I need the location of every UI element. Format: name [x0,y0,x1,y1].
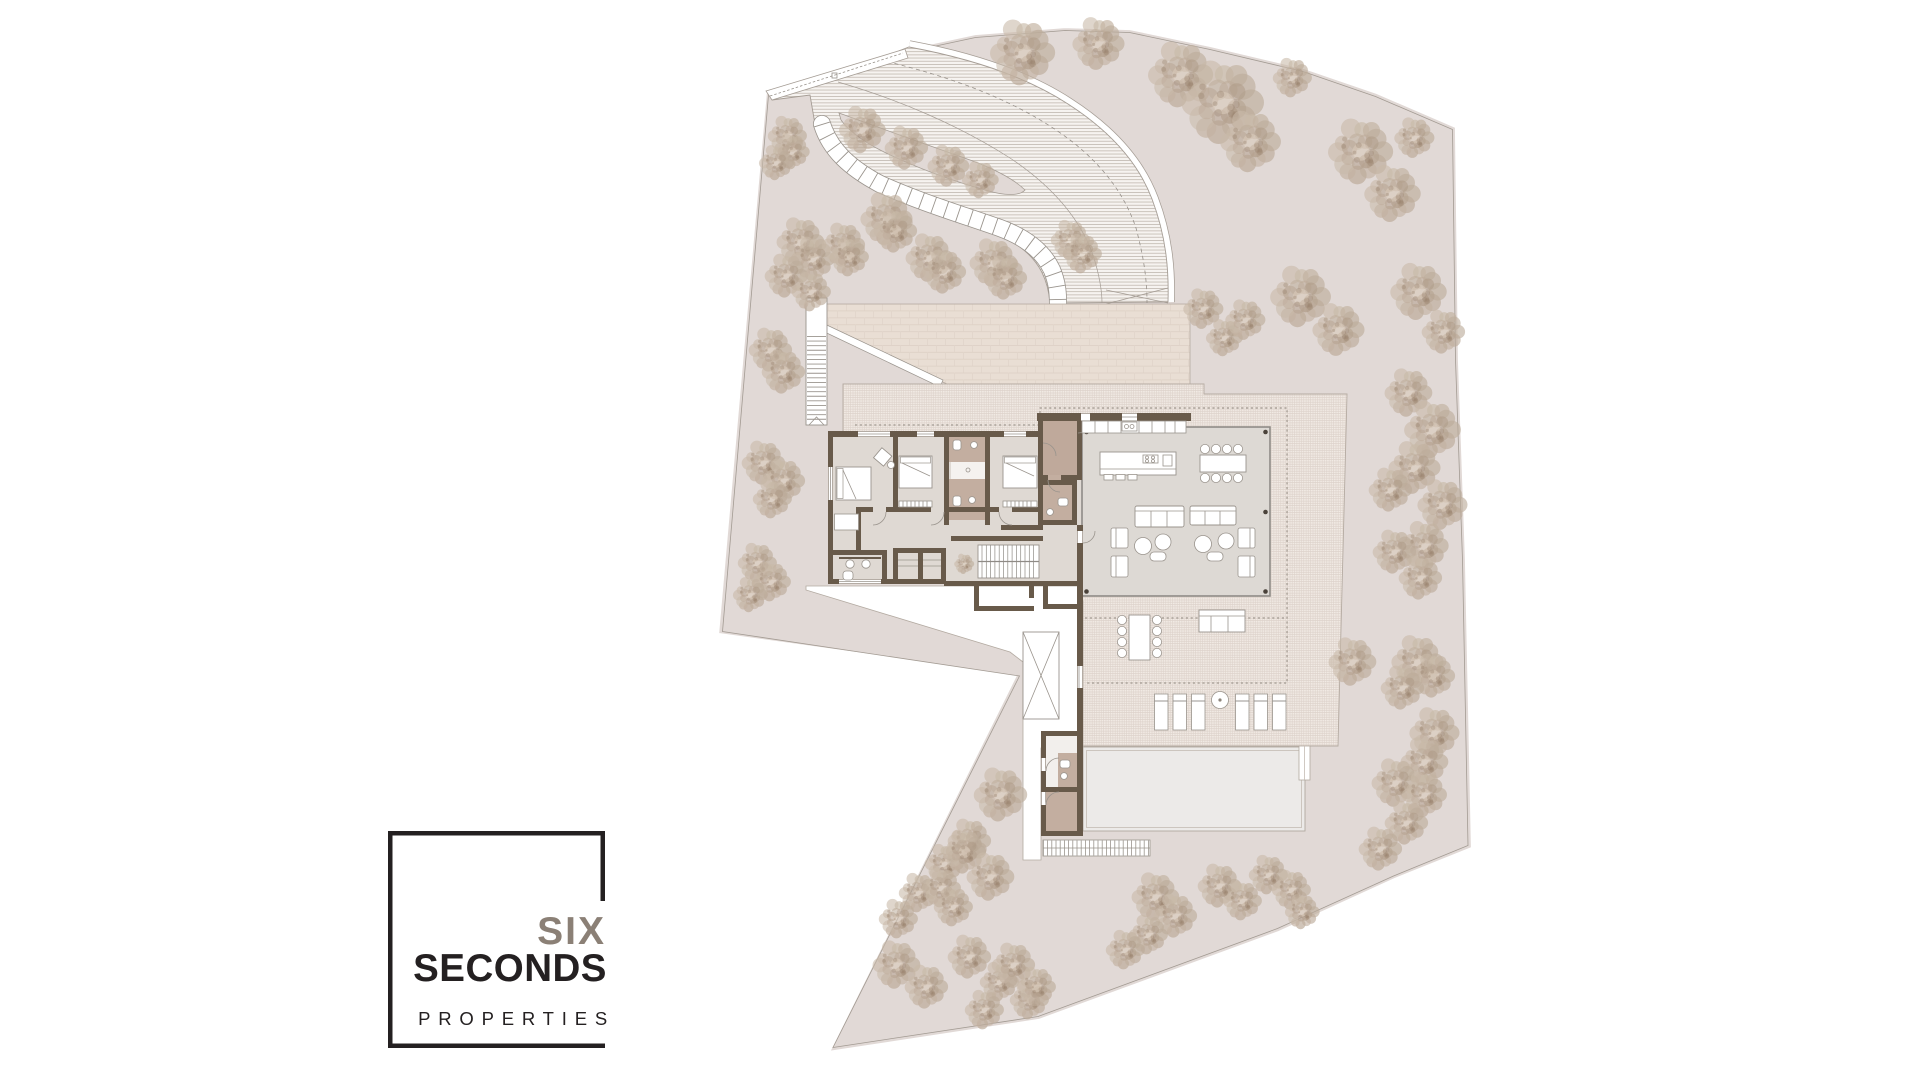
svg-text:PROPERTIES: PROPERTIES [418,1008,615,1029]
svg-text:SECONDS: SECONDS [413,947,607,990]
